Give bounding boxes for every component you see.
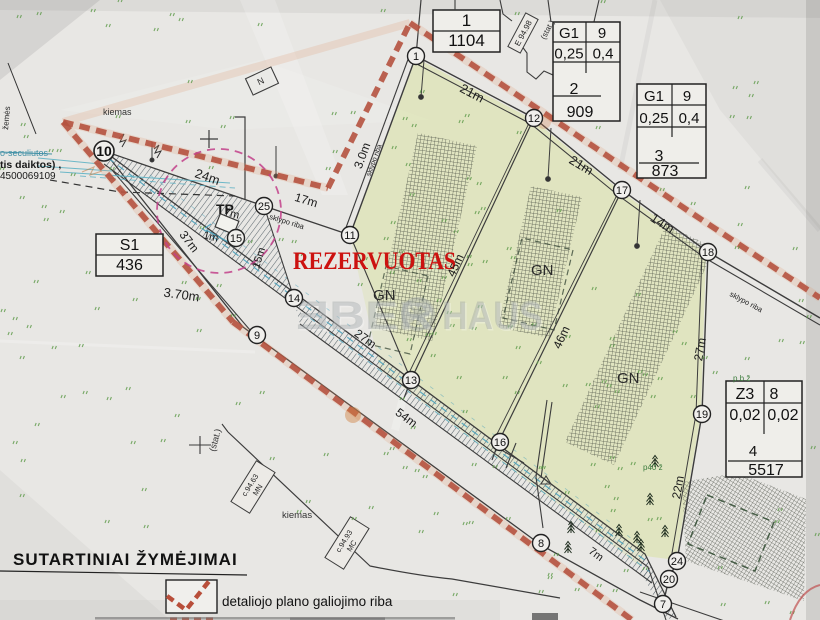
svg-text:0,25: 0,25	[639, 110, 668, 127]
svg-text:8: 8	[770, 386, 779, 403]
svg-text:0,4: 0,4	[679, 110, 700, 127]
svg-text:HAUS: HAUS	[442, 294, 542, 338]
svg-text:24: 24	[671, 556, 683, 568]
svg-text:9: 9	[254, 330, 260, 342]
svg-text:G1: G1	[644, 88, 664, 105]
svg-text:9: 9	[598, 25, 606, 42]
svg-text:1104: 1104	[448, 31, 485, 50]
svg-text:14: 14	[288, 293, 300, 305]
svg-text:16: 16	[494, 437, 506, 449]
svg-text:detaliojo plano galiojimo riba: detaliojo plano galiojimo riba	[222, 594, 393, 609]
svg-text:909: 909	[567, 104, 594, 121]
svg-text:9: 9	[683, 88, 691, 105]
svg-text:GN: GN	[373, 287, 396, 304]
svg-text:TP: TP	[216, 201, 234, 217]
svg-text:18: 18	[702, 247, 714, 259]
svg-text:S1: S1	[120, 237, 140, 254]
svg-text:2: 2	[570, 81, 579, 98]
svg-text:19: 19	[696, 409, 708, 421]
svg-text:15: 15	[230, 233, 242, 245]
svg-text:12: 12	[528, 113, 540, 125]
svg-text:10: 10	[96, 143, 112, 159]
svg-text:REZERVUOTAS: REZERVUOTAS	[293, 248, 456, 275]
svg-text:1: 1	[462, 11, 471, 30]
svg-text:kiemas: kiemas	[103, 107, 132, 117]
svg-text:13: 13	[405, 375, 417, 387]
svg-text:kiemas: kiemas	[282, 510, 312, 521]
svg-text:7: 7	[660, 599, 666, 611]
svg-text:p40 ž: p40 ž	[643, 463, 663, 472]
svg-text:p.b.ž: p.b.ž	[733, 374, 750, 383]
svg-text:5517: 5517	[748, 462, 784, 479]
svg-text:GN: GN	[531, 262, 554, 279]
svg-text:1: 1	[413, 51, 419, 63]
svg-text:17: 17	[616, 185, 628, 197]
svg-text:0,25: 0,25	[554, 46, 583, 63]
svg-text:436: 436	[116, 257, 143, 274]
svg-text:SUTARTINIAI ŽYMĖJIMAI: SUTARTINIAI ŽYMĖJIMAI	[13, 550, 238, 569]
svg-text:20: 20	[663, 574, 675, 586]
svg-text:4: 4	[749, 443, 757, 460]
svg-text:GN: GN	[617, 370, 640, 387]
svg-text:0,02: 0,02	[729, 407, 760, 424]
svg-text:G1: G1	[559, 25, 579, 42]
svg-text:0,4: 0,4	[593, 46, 614, 63]
svg-text:0,02: 0,02	[767, 407, 798, 424]
svg-text:873: 873	[652, 163, 679, 180]
svg-text:Z3: Z3	[736, 386, 755, 403]
svg-text:4500069109: 4500069109	[0, 171, 56, 182]
svg-text:8: 8	[538, 538, 544, 550]
svg-text:11: 11	[344, 230, 355, 242]
svg-text:25: 25	[258, 201, 270, 213]
svg-text:tis daiktos) ,: tis daiktos) ,	[0, 159, 61, 171]
